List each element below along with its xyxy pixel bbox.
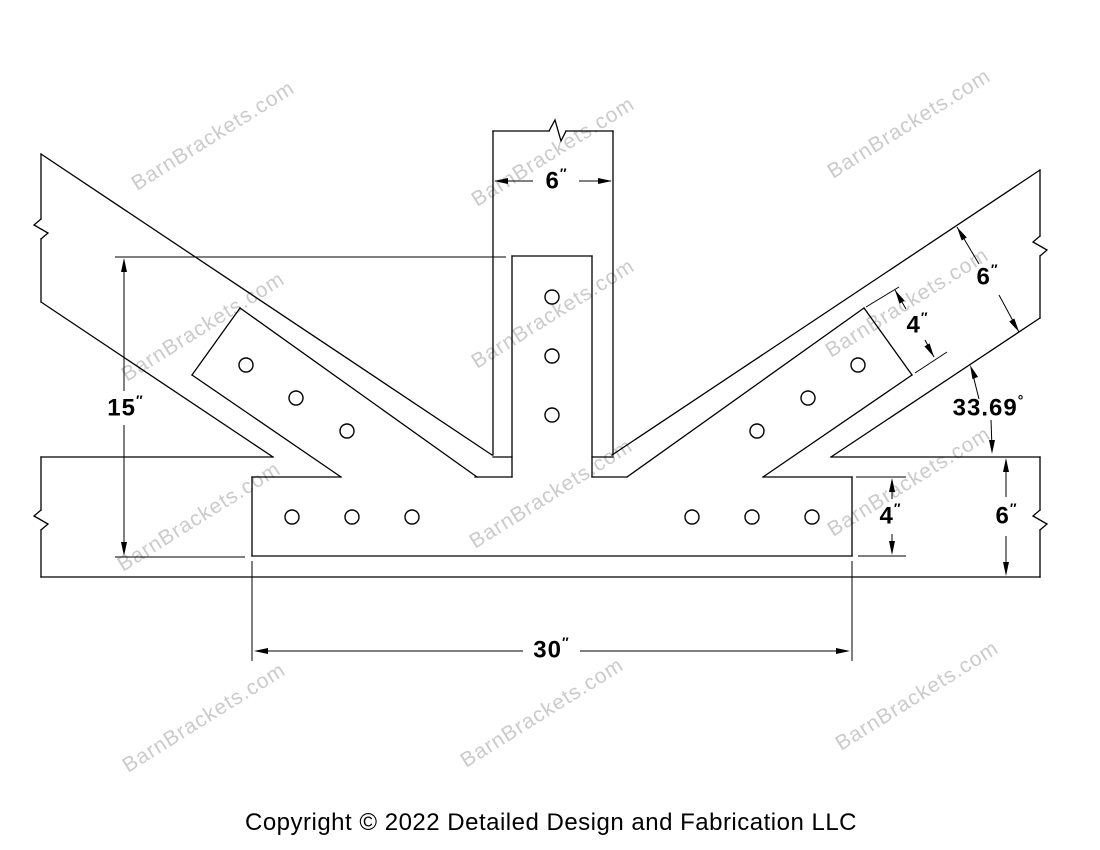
bolt-hole	[851, 358, 865, 372]
watermark-text: BarnBrackets.com	[831, 636, 1002, 755]
break-symbol	[1033, 510, 1047, 530]
dim-bottom-plate-width: 30″	[533, 634, 569, 664]
dimension-arrow	[989, 440, 995, 454]
bolt-hole	[750, 424, 764, 438]
dim-brace-depth: 6″	[976, 261, 997, 291]
bolt-hole	[345, 510, 359, 524]
bolt-hole	[405, 510, 419, 524]
watermark-text: BarnBrackets.com	[465, 434, 636, 553]
copyright-text: Copyright © 2022 Detailed Design and Fab…	[245, 809, 857, 836]
bolt-hole	[685, 510, 699, 524]
bolt-hole	[545, 290, 559, 304]
bolt-hole	[285, 510, 299, 524]
dimension-labels: 6″15″30″4″6″6″4″33.69°	[107, 165, 1023, 664]
drawing-page: BarnBrackets.comBarnBrackets.comBarnBrac…	[0, 0, 1100, 850]
watermark-text: BarnBrackets.com	[823, 64, 994, 183]
dimension-arrow	[924, 343, 936, 358]
dim-arm-width: 4″	[906, 309, 927, 339]
watermark-text: BarnBrackets.com	[821, 243, 992, 362]
extension-line	[915, 352, 947, 373]
watermark-text: BarnBrackets.com	[117, 267, 288, 386]
bolt-hole	[545, 408, 559, 422]
dim-post-width: 6″	[545, 165, 566, 195]
dimension-arrow	[121, 258, 127, 272]
bracket-edge-line	[240, 308, 477, 477]
watermark-text: BarnBrackets.com	[127, 76, 298, 195]
dimension-lines	[115, 178, 1022, 661]
break-symbol	[34, 510, 48, 530]
bolt-hole	[805, 510, 819, 524]
bracket-edge-line	[763, 375, 912, 477]
dimension-arrow	[836, 648, 850, 654]
bolt-hole	[801, 391, 815, 405]
bolt-hole	[745, 510, 759, 524]
watermark-text: BarnBrackets.com	[823, 422, 994, 541]
timber-edge-line	[41, 302, 273, 457]
dimension-arrow	[598, 178, 612, 184]
watermark-text: BarnBrackets.com	[113, 457, 284, 576]
bracket-edge-line	[627, 308, 864, 477]
bolt-hole	[289, 391, 303, 405]
break-symbol	[34, 219, 48, 239]
dimension-arrow	[967, 364, 978, 379]
dim-bracket-height: 15″	[107, 392, 143, 422]
dim-brace-angle: 33.69°	[953, 392, 1024, 422]
dimension-arrow	[254, 648, 268, 654]
bracket-technical-drawing: BarnBrackets.comBarnBrackets.comBarnBrac…	[0, 0, 1100, 850]
dimension-arrow	[1003, 562, 1009, 576]
dim-beam-depth: 6″	[995, 500, 1016, 530]
break-symbol	[1033, 236, 1047, 256]
dimension-arrow	[889, 541, 895, 555]
watermark-text: BarnBrackets.com	[118, 658, 289, 777]
dim-bottom-plate-height: 4″	[879, 500, 900, 530]
bolt-hole	[545, 349, 559, 363]
bolt-hole	[340, 424, 354, 438]
watermark-text: BarnBrackets.com	[456, 653, 627, 772]
dimension-arrow	[1003, 458, 1009, 472]
bolt-hole	[239, 358, 253, 372]
dimension-arrow	[954, 225, 966, 240]
